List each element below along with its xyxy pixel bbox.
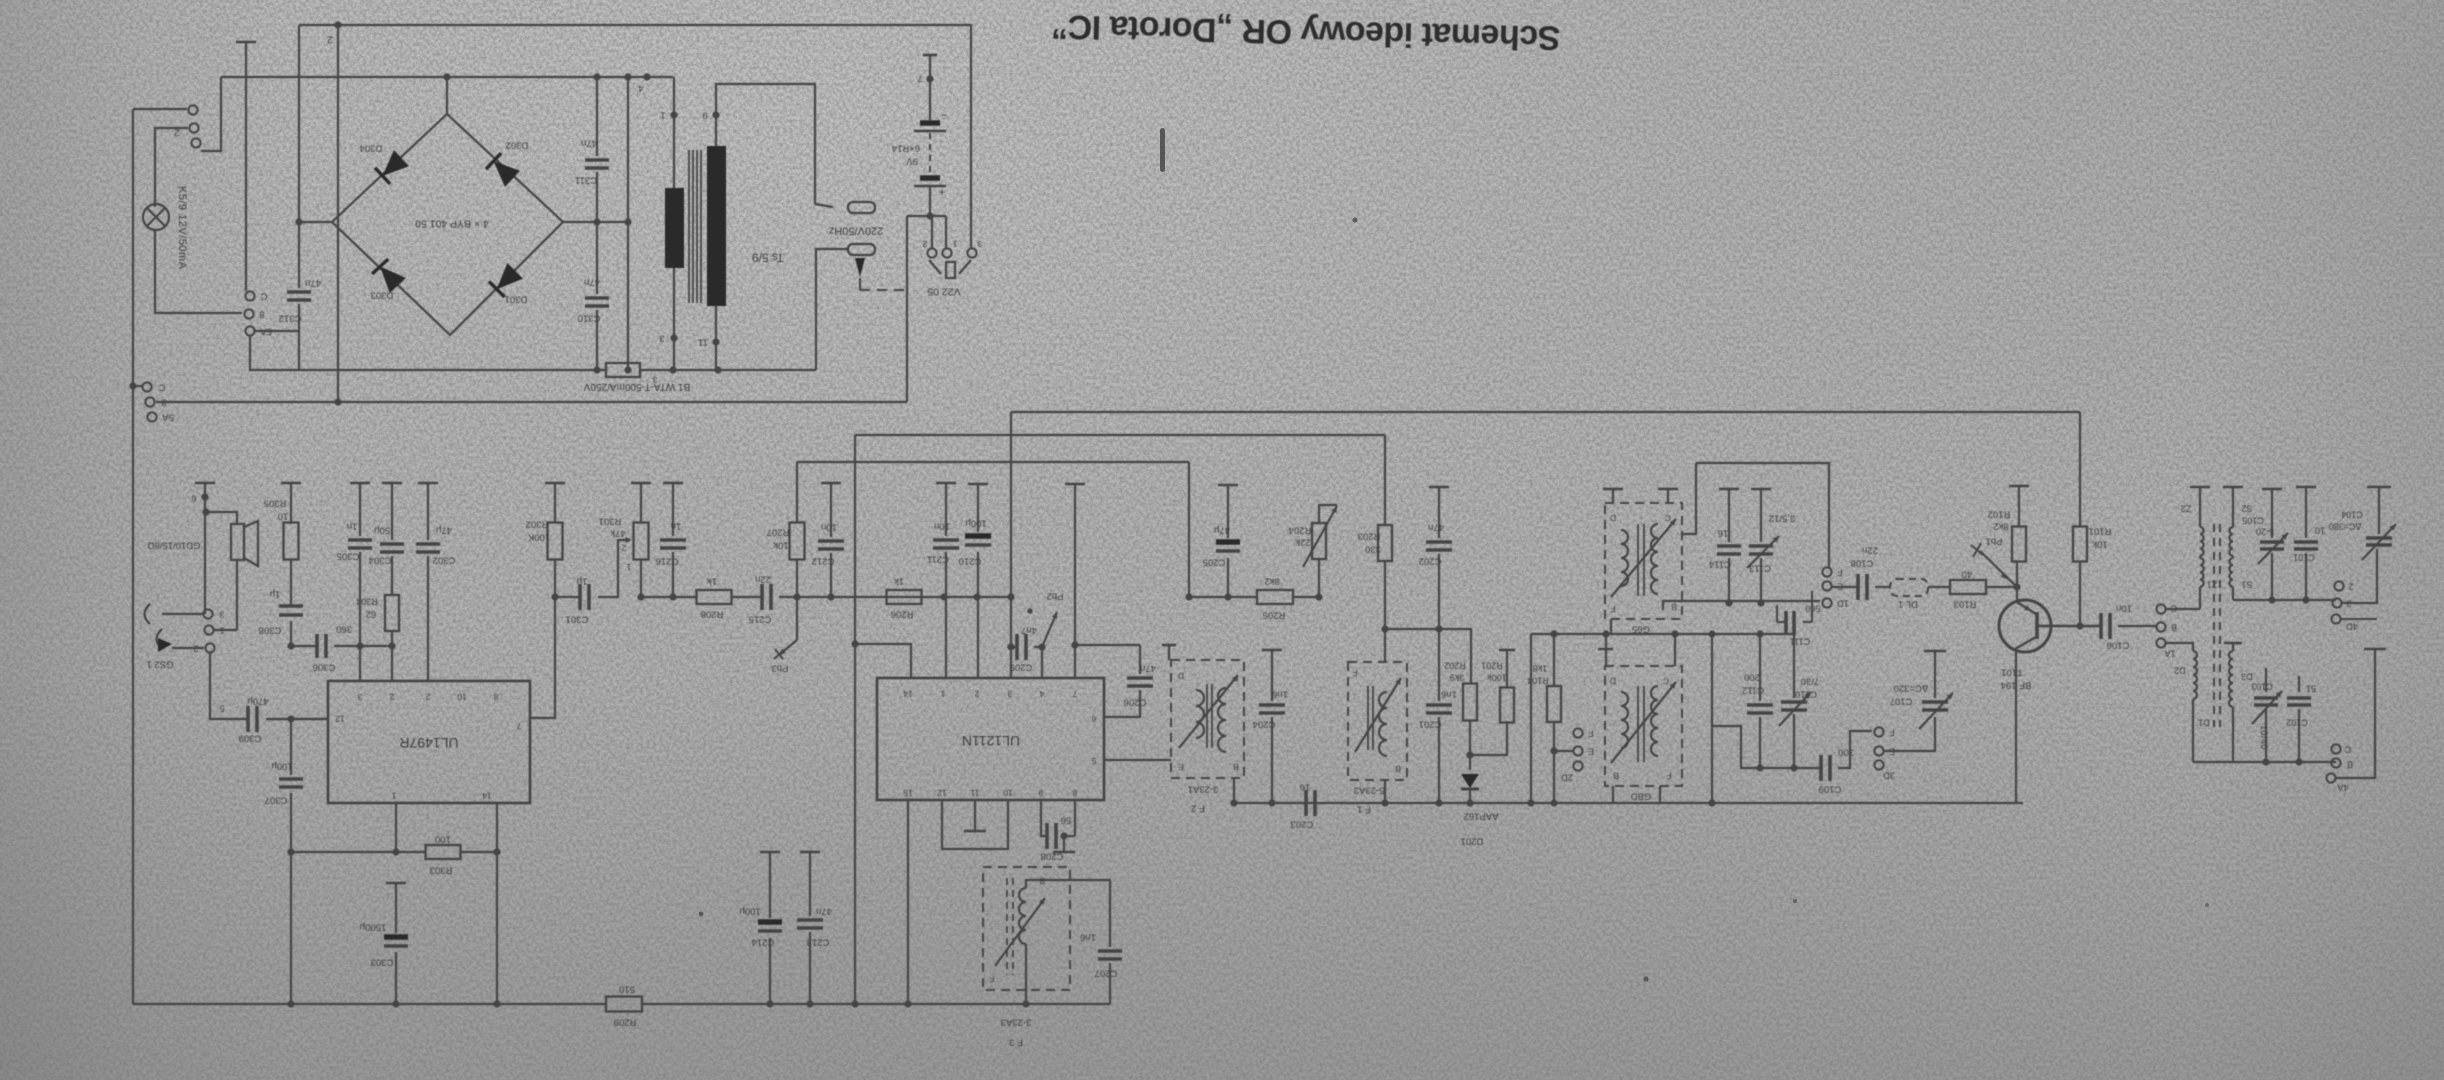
svg-text:B: B [2171,623,2177,633]
svg-text:C: C [158,381,165,392]
svg-text:C307: C307 [265,794,288,805]
svg-text:1500μ: 1500μ [360,921,387,932]
svg-text:GS2 1: GS2 1 [147,658,174,669]
svg-text:C312: C312 [279,312,302,323]
svg-text:C304: C304 [369,554,392,565]
svg-text:S2: S2 [2241,504,2252,514]
svg-text:470μ: 470μ [247,695,268,706]
svg-text:10n: 10n [934,520,950,531]
svg-text:7/30: 7/30 [1801,675,1820,686]
svg-text:47n: 47n [816,905,832,916]
svg-text:C109: C109 [1819,783,1842,794]
svg-text:100K: 100K [527,531,550,542]
svg-text:6: 6 [191,494,196,504]
svg-text:1: 1 [952,239,957,249]
svg-text:2: 2 [327,34,333,46]
svg-text:1k8: 1k8 [1533,664,1548,674]
svg-text:100μ: 100μ [271,760,292,771]
svg-text:2D: 2D [1561,773,1573,783]
svg-text:+: + [939,185,945,197]
svg-text:D302: D302 [506,139,529,150]
svg-text:R304: R304 [356,597,378,607]
svg-text:3D: 3D [1883,771,1895,781]
svg-text:V22 05: V22 05 [927,286,960,298]
svg-text:F 1: F 1 [1357,803,1371,814]
svg-text:F: F [1352,668,1357,678]
svg-text:8: 8 [259,308,264,319]
svg-text:4n7: 4n7 [1021,624,1037,635]
svg-text:D303: D303 [371,289,394,300]
svg-text:R205: R205 [1263,609,1286,620]
svg-text:B: B [1613,771,1619,781]
svg-text:5: 5 [219,704,224,714]
svg-text:R206: R206 [891,608,914,619]
svg-text:5-23A3: 5-23A3 [1354,784,1385,795]
svg-text:10: 10 [1003,788,1013,798]
svg-text:3: 3 [1007,689,1012,699]
svg-text:UL1497R: UL1497R [399,735,458,751]
svg-text:C216: C216 [656,555,679,566]
svg-text:22n: 22n [755,573,771,584]
svg-text:K5/9 12V/50mA: K5/9 12V/50mA [176,186,188,270]
svg-text:9: 9 [702,109,707,120]
svg-text:C213: C213 [807,936,830,947]
svg-text:D3: D3 [2241,672,2253,682]
svg-text:8k2: 8k2 [1993,520,2008,531]
svg-text:E: E [1178,762,1184,772]
svg-text:R305: R305 [264,497,287,508]
svg-text:4: 4 [638,82,643,93]
svg-text:Pb2: Pb2 [1047,590,1064,601]
svg-text:3-23A3: 3-23A3 [1001,1016,1032,1027]
svg-text:D: D [1610,676,1616,686]
svg-text:R303: R303 [430,864,453,875]
svg-text:F: F [1610,604,1615,614]
svg-text:51: 51 [2306,684,2316,694]
svg-text:R104: R104 [1527,676,1549,686]
svg-text:G65: G65 [1632,623,1650,634]
svg-text:D: D [1610,513,1616,523]
svg-text:R301: R301 [599,515,622,526]
svg-text:8k2: 8k2 [1264,575,1279,586]
svg-text:12: 12 [937,788,947,798]
svg-text:B: B [1395,764,1401,774]
svg-text:10k: 10k [2092,538,2108,549]
svg-text:C209: C209 [1010,661,1033,672]
svg-text:C301: C301 [566,613,589,624]
svg-text:C: C [2344,745,2351,755]
svg-text:2: 2 [425,692,430,702]
svg-text:AAP162: AAP162 [1464,810,1499,821]
svg-text:C104: C104 [2341,510,2363,520]
svg-text:56: 56 [1061,814,1072,825]
svg-text:560: 560 [1805,604,1820,614]
svg-text:47n: 47n [1428,521,1444,532]
svg-text:R207: R207 [767,526,790,537]
svg-text:47n: 47n [581,137,597,148]
svg-text:7: 7 [917,72,922,83]
svg-text:B: B [1671,602,1677,612]
svg-text:1n: 1n [671,520,682,531]
svg-text:C211: C211 [927,553,949,564]
svg-text:330: 330 [1365,543,1381,554]
svg-text:10n: 10n [2116,602,2132,613]
svg-text:15: 15 [903,788,913,798]
svg-text:R101: R101 [2089,525,2112,536]
svg-text:C: C [260,290,267,301]
svg-text:ΔC=320: ΔC=320 [1894,682,1929,693]
svg-text:B1 WTA-T-500mA/250V: B1 WTA-T-500mA/250V [583,381,690,392]
svg-text:C308: C308 [259,624,282,635]
svg-text:5A: 5A [162,411,174,422]
svg-text:12: 12 [335,714,345,724]
svg-text:9: 9 [1038,788,1043,798]
svg-text:C201: C201 [1419,718,1442,729]
svg-text:9V: 9V [906,155,918,166]
svg-text:GBD: GBD [1631,790,1652,801]
svg-text:6: 6 [1091,714,1096,724]
svg-text:2: 2 [621,543,626,553]
svg-text:47μ: 47μ [1214,524,1230,535]
svg-text:200: 200 [1744,671,1760,682]
svg-text:C303: C303 [371,956,394,967]
svg-text:C206: C206 [1124,696,1147,707]
svg-text:R201: R201 [1481,661,1503,671]
svg-text:F: F [1889,728,1895,738]
svg-text:47k: 47k [610,527,626,538]
svg-text:1k: 1k [894,575,904,586]
svg-text:R208: R208 [701,608,724,619]
svg-text:UL1211N: UL1211N [962,733,1020,749]
svg-text:E: E [1588,747,1594,757]
svg-text:R102: R102 [1988,508,2011,519]
svg-text:C101: C101 [2293,553,2315,563]
svg-text:100: 100 [435,833,451,844]
svg-text:GD10/15/8Ω: GD10/15/8Ω [147,539,200,550]
svg-text:4A: 4A [2337,783,2348,793]
svg-text:16: 16 [1300,781,1311,792]
svg-text:Ts 5/9: Ts 5/9 [752,251,784,265]
svg-text:3-23A1: 3-23A1 [1188,783,1219,794]
svg-text:C311: C311 [575,174,597,185]
svg-text:1D: 1D [1837,599,1849,609]
svg-text:C: C [1665,513,1671,523]
svg-text:C102: C102 [2286,718,2308,728]
svg-text:C107: C107 [1890,695,1913,706]
svg-text:R103: R103 [1954,598,1977,609]
svg-text:1μ: 1μ [577,575,588,586]
svg-text:3: 3 [652,375,657,385]
svg-text:22k: 22k [1295,536,1311,547]
svg-text:C215: C215 [749,613,772,624]
svg-text:100μ: 100μ [739,905,760,916]
svg-text:40: 40 [1962,568,1973,579]
svg-text:8: 8 [1072,788,1077,798]
svg-text:C302: C302 [433,554,456,565]
svg-text:11: 11 [970,788,979,798]
svg-text:C309: C309 [239,732,262,743]
svg-text:S1: S1 [2241,580,2252,590]
svg-text:B: B [2347,760,2353,770]
svg-text:3: 3 [219,610,224,620]
svg-text:1n: 1n [347,520,358,531]
svg-text:14: 14 [482,791,492,801]
svg-text:D301: D301 [505,293,528,304]
svg-text:D304: D304 [360,142,383,153]
svg-text:3: 3 [977,239,982,249]
svg-text:T101: T101 [2001,666,2023,677]
svg-text:1n6: 1n6 [1272,688,1288,699]
svg-text:C110: C110 [1795,688,1817,699]
svg-text:3k9: 3k9 [1450,673,1465,683]
svg-text:F 3: F 3 [1009,1036,1023,1047]
svg-text:D: D [1178,671,1184,681]
svg-text:62: 62 [366,608,377,619]
svg-text:C210: C210 [959,555,982,566]
svg-text:C203: C203 [1291,818,1314,829]
svg-text:D201: D201 [1461,835,1484,846]
svg-text:F 2: F 2 [1191,802,1205,813]
svg-text:Pb1: Pb1 [1986,535,2003,546]
svg-text:10/40: 10/40 [2259,725,2269,750]
svg-text:C: C [1663,676,1669,686]
svg-text:1n6: 1n6 [1441,688,1457,699]
svg-text:C214: C214 [752,936,775,947]
svg-text:R302: R302 [526,518,549,529]
svg-text:100μ: 100μ [965,517,986,528]
svg-text:C305: C305 [337,550,360,561]
svg-text:14: 14 [903,689,913,699]
svg-text:B: B [1233,762,1239,772]
svg-text:360: 360 [336,623,352,634]
svg-text:F: F [1837,568,1843,578]
svg-text:C105: C105 [2242,516,2264,526]
svg-text:10: 10 [2315,526,2325,536]
svg-text:C207: C207 [1095,967,1118,978]
svg-text:100k: 100k [1487,673,1507,683]
svg-text:10: 10 [457,692,467,702]
svg-text:C306: C306 [313,661,336,672]
svg-text:Z2: Z2 [2181,504,2192,514]
svg-text:47n: 47n [584,276,600,287]
svg-text:10: 10 [278,510,289,521]
svg-text:D2: D2 [2174,666,2186,676]
svg-text:220V/50Hz: 220V/50Hz [829,224,883,236]
svg-text:22n: 22n [1862,544,1878,555]
svg-text:1: 1 [940,689,945,699]
svg-text:3: 3 [357,692,362,702]
svg-text:10k: 10k [773,539,789,550]
svg-text:16: 16 [1718,527,1729,538]
svg-text:ΔC=380: ΔC=380 [2329,522,2362,532]
svg-text:1: 1 [391,791,396,801]
svg-text:2: 2 [922,239,927,249]
svg-text:R203: R203 [1358,530,1381,541]
svg-text:C112: C112 [1742,684,1764,695]
svg-text:3,5/12: 3,5/12 [1769,512,1795,523]
svg-text:5-20: 5-20 [2256,527,2274,537]
svg-text:1n6: 1n6 [1080,931,1096,942]
svg-text:1: 1 [660,109,665,120]
svg-text:R209: R209 [614,1016,637,1027]
svg-text:300: 300 [1838,746,1854,757]
svg-text:8: 8 [493,692,498,702]
svg-text:C106: C106 [2107,639,2130,650]
svg-text:C202: C202 [1419,555,1442,566]
svg-text:5: 5 [1091,756,1096,766]
svg-text:10n: 10n [821,521,837,532]
svg-text:50μ: 50μ [374,524,390,535]
svg-text:C204: C204 [1253,718,1276,729]
svg-text:1: 1 [626,562,631,572]
svg-text:1k: 1k [707,575,717,586]
svg-text:D1: D1 [2198,718,2210,728]
svg-text:47μ: 47μ [436,524,452,535]
svg-text:F: F [989,974,994,984]
svg-text:3: 3 [659,332,664,343]
svg-text:F: F [1666,771,1671,781]
svg-text:4: 4 [1039,689,1044,699]
svg-text:7: 7 [1072,689,1077,699]
svg-text:11: 11 [698,336,708,347]
svg-text:C205: C205 [1203,556,1226,567]
svg-text:47n: 47n [1140,662,1156,673]
svg-text:R202: R202 [1444,661,1466,671]
svg-text:C114: C114 [1709,558,1731,569]
svg-text:Z1: Z1 [2207,580,2218,590]
svg-text:C310: C310 [578,312,601,323]
svg-text:R204: R204 [1289,524,1312,535]
svg-text:7: 7 [516,721,521,731]
svg-text:C212: C212 [812,555,835,566]
svg-text:47n: 47n [305,277,321,288]
svg-text:6×R14: 6×R14 [892,142,920,153]
svg-text:2: 2 [389,692,394,702]
svg-text:C103: C103 [2251,682,2273,692]
svg-text:2: 2 [2348,582,2353,592]
svg-text:510: 510 [619,983,635,994]
svg-text:2: 2 [974,689,979,699]
svg-text:1A: 1A [2164,649,2175,659]
svg-text:F: F [1588,729,1594,739]
svg-text:1μ: 1μ [270,588,281,599]
svg-text:−: − [941,108,947,120]
svg-text:DL 1: DL 1 [1898,598,1918,609]
svg-text:C113: C113 [1749,562,1771,573]
svg-text:Pb3: Pb3 [772,662,789,673]
svg-text:C108: C108 [1851,557,1874,568]
svg-text:4D: 4D [2346,622,2358,632]
svg-text:4 × BYP 401 50: 4 × BYP 401 50 [415,218,489,230]
